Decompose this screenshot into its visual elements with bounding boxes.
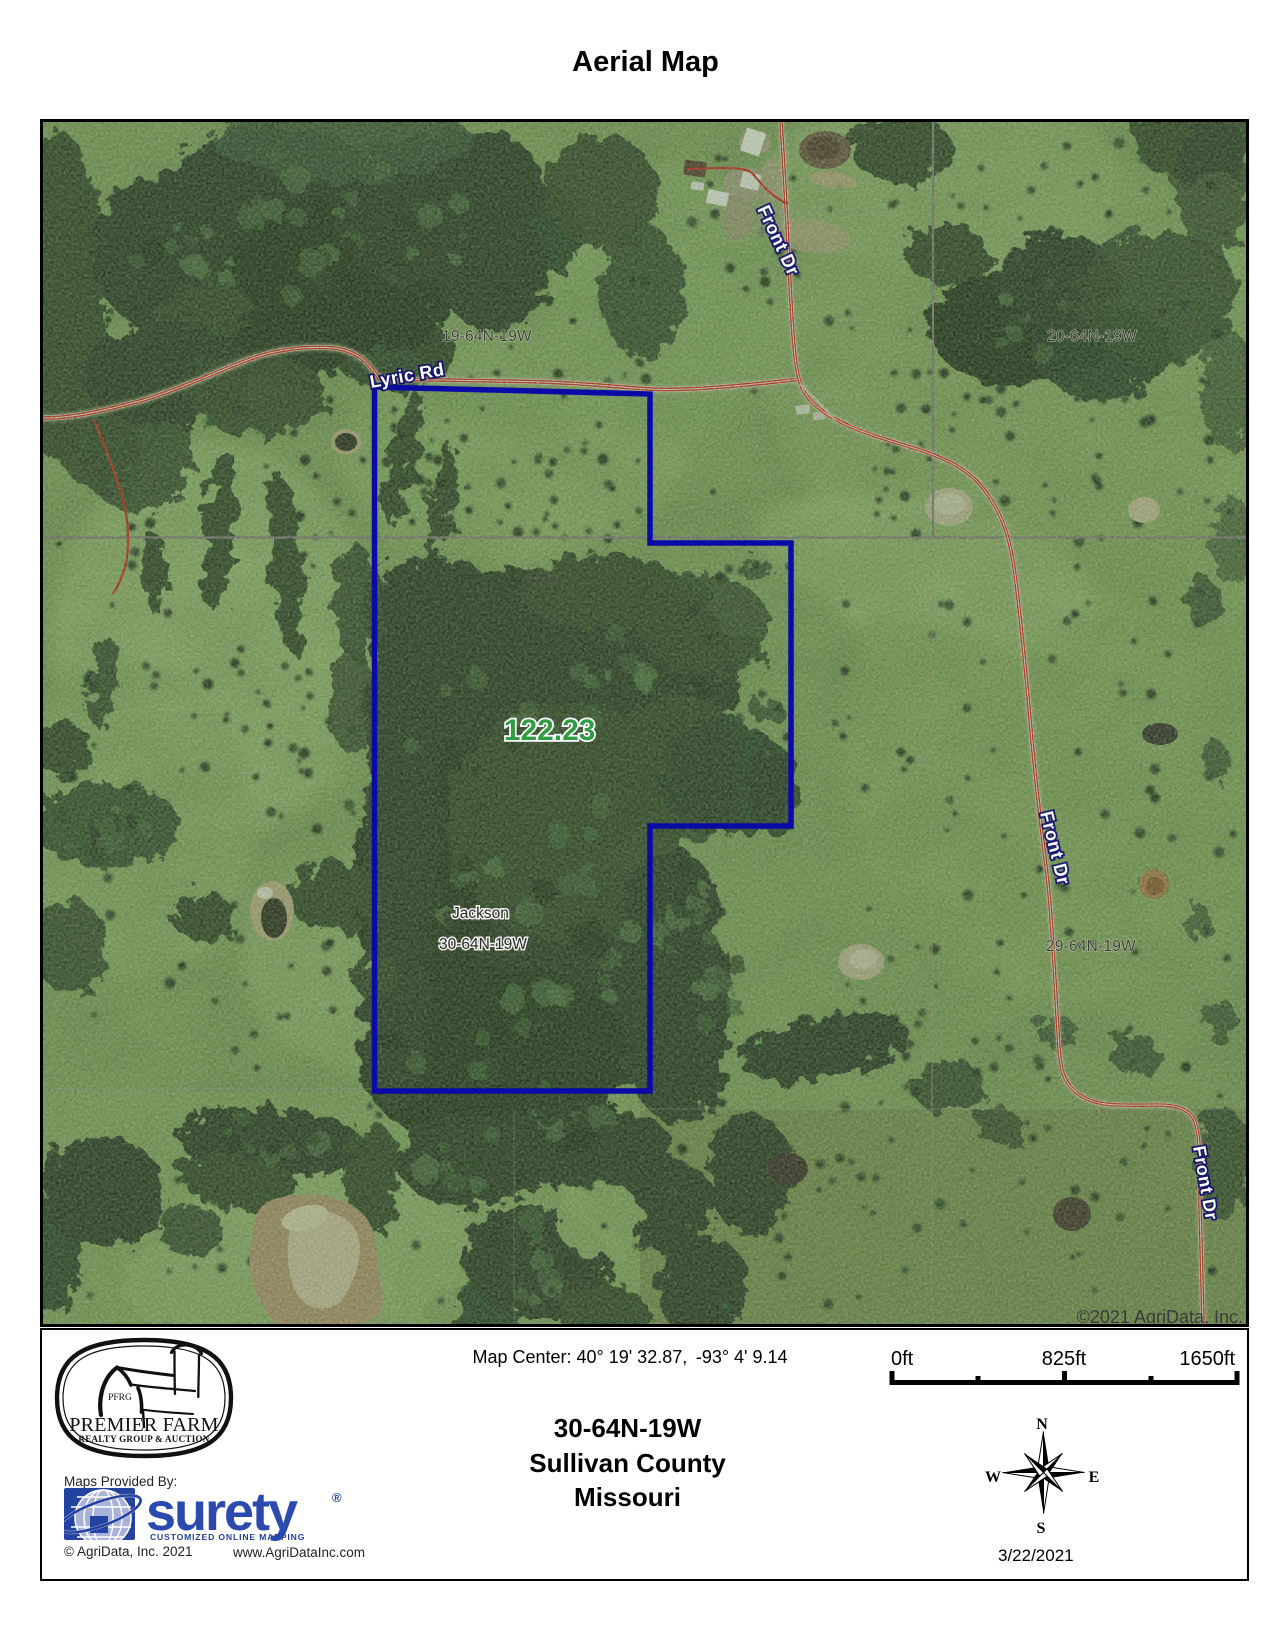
- svg-text:PREMIER FARM: PREMIER FARM: [69, 1414, 218, 1436]
- svg-text:CUSTOMIZED ONLINE MAPPING: CUSTOMIZED ONLINE MAPPING: [150, 1532, 305, 1542]
- svg-text:E: E: [1089, 1469, 1100, 1486]
- svg-text:1650ft: 1650ft: [1179, 1348, 1235, 1370]
- svg-text:S: S: [1037, 1520, 1046, 1537]
- svg-text:825ft: 825ft: [1042, 1348, 1087, 1370]
- svg-text:REALTY GROUP & AUCTION: REALTY GROUP & AUCTION: [78, 1434, 209, 1444]
- svg-text:®: ®: [332, 1490, 342, 1505]
- svg-text:0ft: 0ft: [891, 1348, 914, 1370]
- svg-text:©2021 AgriData, Inc.: ©2021 AgriData, Inc.: [1077, 1307, 1243, 1324]
- svg-text:29-64N-19W: 29-64N-19W: [1046, 938, 1136, 955]
- svg-text:30-64N-19W: 30-64N-19W: [439, 936, 527, 953]
- svg-text:19-64N-19W: 19-64N-19W: [442, 328, 532, 345]
- svg-text:Jackson: Jackson: [452, 905, 509, 922]
- svg-text:N: N: [1036, 1416, 1048, 1433]
- svg-text:PFRG: PFRG: [108, 1393, 132, 1403]
- svg-text:20-64N-19W: 20-64N-19W: [1047, 328, 1137, 345]
- svg-text:W: W: [985, 1469, 1001, 1486]
- svg-text:122.23: 122.23: [504, 714, 595, 747]
